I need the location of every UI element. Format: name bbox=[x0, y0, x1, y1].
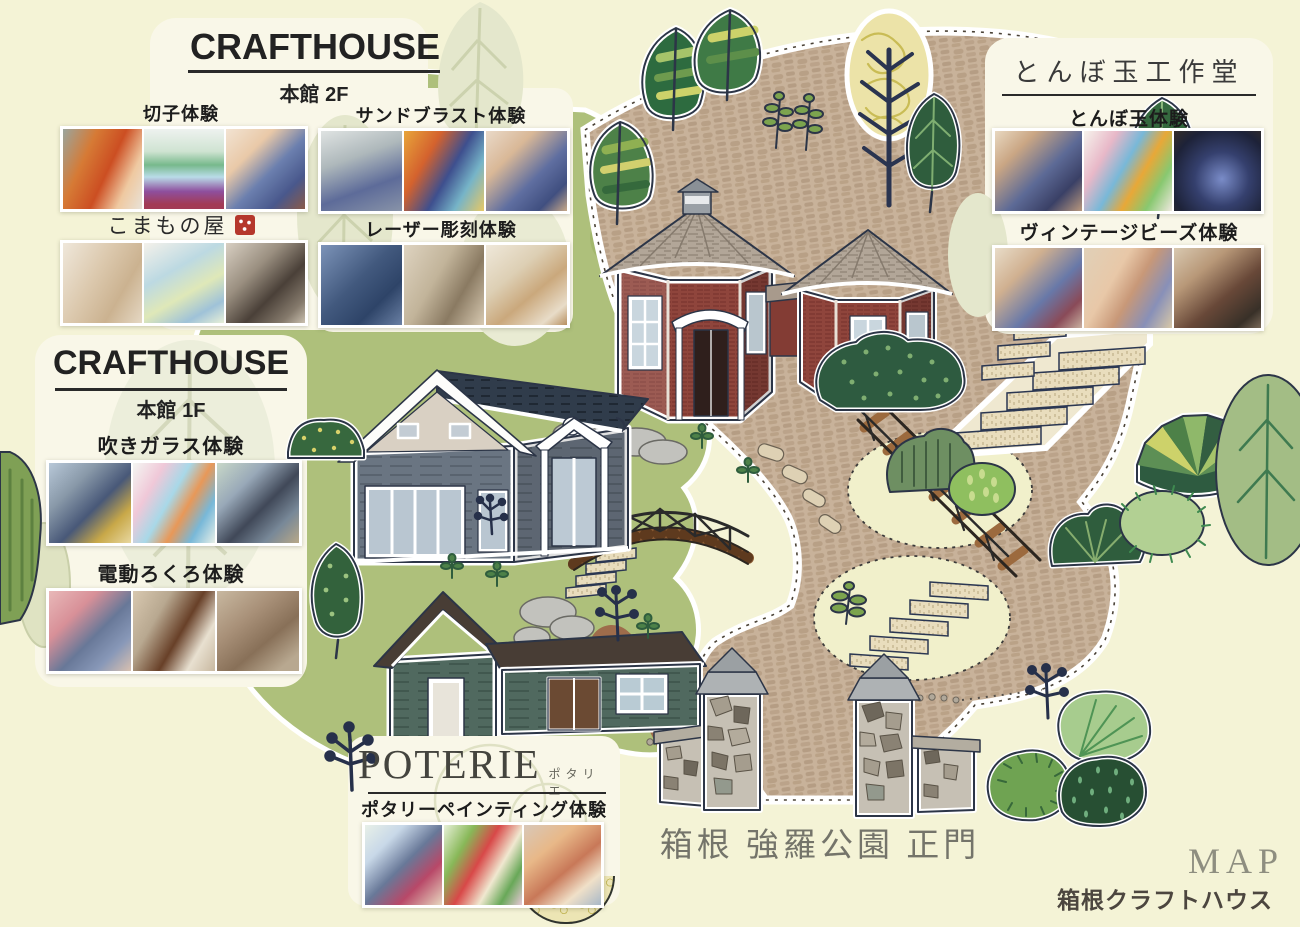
laser-photo-2 bbox=[404, 245, 485, 325]
kiriko-photo-3 bbox=[226, 129, 305, 209]
kiriko-label: 切子体験 bbox=[62, 100, 300, 126]
sandblast-label: サンドブラスト体験 bbox=[318, 102, 564, 128]
laser-photo-3 bbox=[486, 245, 567, 325]
tonbodama-label: とんぼ玉体験 bbox=[990, 104, 1268, 131]
glassblowing-photo-strip bbox=[46, 460, 302, 546]
vintage-beads-label: ヴィンテージビーズ体験 bbox=[985, 218, 1273, 245]
tonbodama-photo-strip bbox=[992, 128, 1264, 214]
title-underline bbox=[1002, 94, 1256, 96]
poterie-photo-1 bbox=[365, 825, 442, 905]
poterie-photo-3 bbox=[524, 825, 601, 905]
sandblast-photo-2 bbox=[404, 131, 485, 211]
title-underline bbox=[188, 70, 440, 73]
crafthouse-1f-title: CRAFTHOUSE bbox=[53, 344, 289, 383]
komamono-photo-2 bbox=[144, 243, 223, 323]
crafthouse-1f-floor: 本館 1F bbox=[55, 394, 287, 423]
poterie-painting-label: ポタリーペインティング体験 bbox=[352, 796, 616, 822]
pottery-wheel-photo-3 bbox=[217, 591, 299, 671]
poterie-title-row: POTERIE ポタリエ bbox=[358, 740, 610, 799]
hakone-crafthouse-map: CRAFTHOUSE 本館 2F 切子体験 こまもの屋 サンドブラスト体験 レー… bbox=[0, 0, 1300, 927]
tonbodama-photo-2 bbox=[1084, 131, 1171, 211]
kiriko-photo-2 bbox=[144, 129, 223, 209]
pottery-wheel-label: 電動ろくろ体験 bbox=[42, 558, 300, 587]
kiriko-photo-strip bbox=[60, 126, 308, 212]
laser-label: レーザー彫刻体験 bbox=[318, 216, 564, 242]
sandblast-photo-1 bbox=[321, 131, 402, 211]
komamono-label: こまもの屋 bbox=[108, 210, 228, 240]
gate-label: 箱根 強羅公園 正門 bbox=[655, 818, 985, 866]
glassblowing-photo-1 bbox=[49, 463, 131, 543]
hanko-seal-icon bbox=[235, 215, 255, 235]
tonbodama-photo-1 bbox=[995, 131, 1082, 211]
komamono-photo-3 bbox=[226, 243, 305, 323]
vintage-beads-photo-2 bbox=[1084, 248, 1171, 328]
komamono-row: こまもの屋 bbox=[60, 210, 302, 240]
glassblowing-photo-2 bbox=[133, 463, 215, 543]
vintage-beads-photo-strip bbox=[992, 245, 1264, 331]
vintage-beads-photo-1 bbox=[995, 248, 1082, 328]
laser-photo-strip bbox=[318, 242, 570, 328]
tonbodama-studio-title: とんぼ玉工作堂 bbox=[995, 52, 1263, 89]
sandblast-photo-3 bbox=[486, 131, 567, 211]
komamono-photo-strip bbox=[60, 240, 308, 326]
glassblowing-photo-3 bbox=[217, 463, 299, 543]
vintage-beads-photo-3 bbox=[1174, 248, 1261, 328]
pottery-wheel-photo-strip bbox=[46, 588, 302, 674]
map-title: MAP bbox=[1150, 840, 1284, 882]
poterie-photo-2 bbox=[444, 825, 521, 905]
poterie-photo-strip bbox=[362, 822, 604, 908]
glassblowing-label: 吹きガラス体験 bbox=[42, 430, 300, 459]
sandblast-photo-strip bbox=[318, 128, 570, 214]
crafthouse-2f-title: CRAFTHOUSE bbox=[190, 26, 440, 68]
tonbodama-photo-3 bbox=[1174, 131, 1261, 211]
brand-name: 箱根クラフトハウス bbox=[1035, 881, 1273, 915]
title-underline bbox=[55, 388, 287, 391]
kiriko-photo-1 bbox=[63, 129, 142, 209]
pottery-wheel-photo-2 bbox=[133, 591, 215, 671]
pottery-wheel-photo-1 bbox=[49, 591, 131, 671]
title-underline bbox=[368, 792, 606, 794]
komamono-photo-1 bbox=[63, 243, 142, 323]
poterie-title: POTERIE bbox=[358, 740, 541, 788]
laser-photo-1 bbox=[321, 245, 402, 325]
